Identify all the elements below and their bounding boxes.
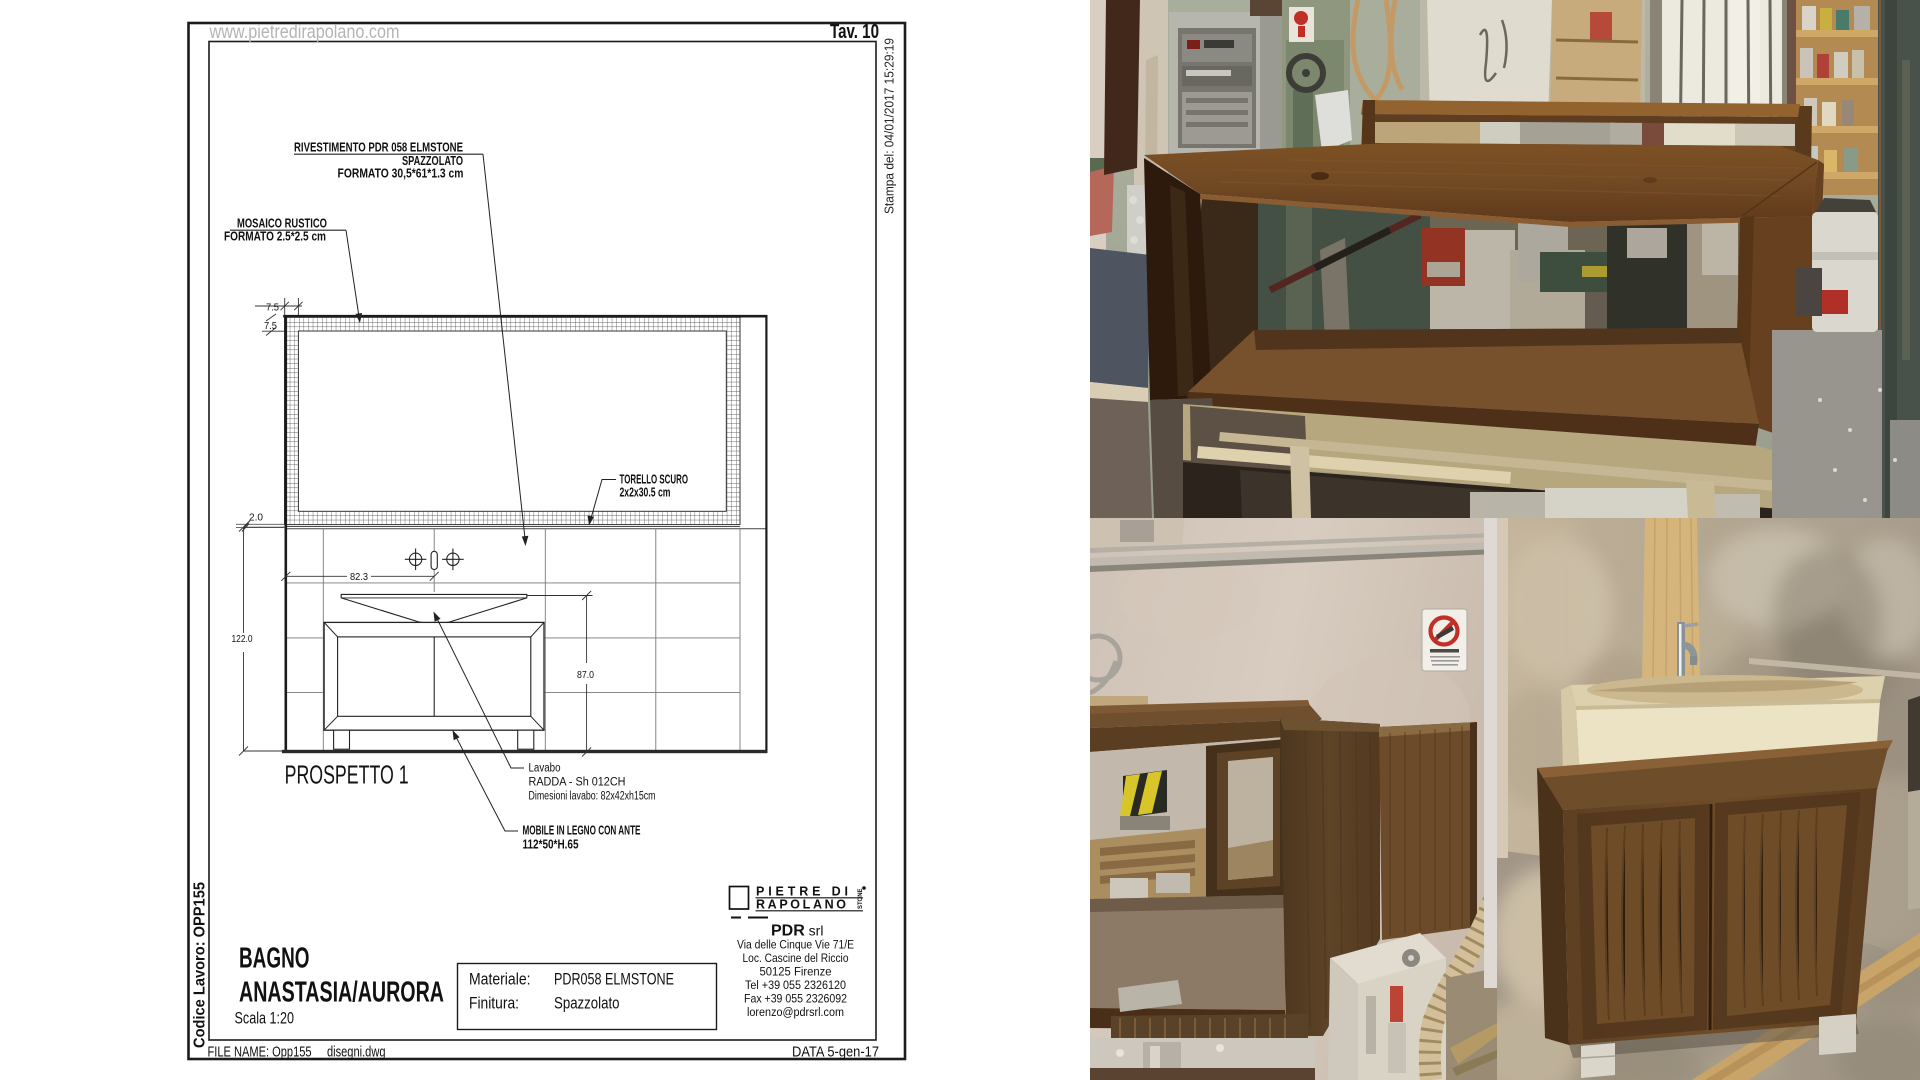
svg-text:Scala 1:20: Scala 1:20 [235, 1009, 295, 1028]
svg-text:TORELLO SCURO: TORELLO SCURO [620, 473, 689, 487]
svg-text:PDR058 ELMSTONE: PDR058 ELMSTONE [554, 971, 674, 989]
svg-text:112*50*H.65: 112*50*H.65 [523, 838, 579, 852]
svg-text:RADDA - Sh 012CH: RADDA - Sh 012CH [529, 777, 626, 789]
svg-text:Loc. Cascine del Riccio: Loc. Cascine del Riccio [743, 951, 849, 965]
svg-text:Dimesioni lavabo: 82x42xh15cm: Dimesioni lavabo: 82x42xh15cm [529, 791, 656, 803]
svg-text:87.0: 87.0 [577, 669, 594, 681]
svg-text:RAPOLANO: RAPOLANO [756, 898, 846, 912]
svg-text:ANASTASIA/AURORA: ANASTASIA/AURORA [239, 977, 444, 1009]
svg-text:MOBILE IN LEGNO CON ANTE: MOBILE IN LEGNO CON ANTE [523, 824, 641, 838]
svg-text:Finitura:: Finitura: [469, 995, 519, 1013]
svg-text:BAGNO: BAGNO [239, 943, 310, 975]
svg-text:FORMATO 30,5*61*1.3 cm: FORMATO 30,5*61*1.3 cm [338, 167, 464, 181]
svg-text:50125 Firenze: 50125 Firenze [760, 965, 832, 979]
svg-text:2x2x30.5 cm: 2x2x30.5 cm [620, 486, 671, 500]
svg-text:Stampa del: 04/01/2017 15:29:1: Stampa del: 04/01/2017 15:29:19 [882, 38, 897, 214]
svg-text:lorenzo@pdrsrl.com: lorenzo@pdrsrl.com [747, 1005, 844, 1019]
svg-text:STONE: STONE [858, 888, 864, 909]
svg-text:Materiale:: Materiale: [469, 971, 531, 989]
svg-text:Fax +39 055 2326092: Fax +39 055 2326092 [744, 992, 847, 1006]
svg-text:Tav. 10: Tav. 10 [830, 20, 879, 43]
svg-text:Codice Lavoro: OPP155: Codice Lavoro: OPP155 [192, 882, 209, 1048]
svg-text:122.0: 122.0 [232, 633, 253, 645]
svg-text:FORMATO 2.5*2.5 cm: FORMATO 2.5*2.5 cm [224, 230, 326, 244]
svg-text:www.pietredirapolano.com: www.pietredirapolano.com [209, 21, 400, 43]
svg-text:82.3: 82.3 [350, 571, 368, 583]
svg-text:Spazzolato: Spazzolato [554, 995, 620, 1013]
svg-text:MOSAICO RUSTICO: MOSAICO RUSTICO [237, 217, 327, 231]
svg-text:RIVESTIMENTO PDR 058 ELMSTONE: RIVESTIMENTO PDR 058 ELMSTONE [294, 141, 463, 155]
svg-text:7.5: 7.5 [264, 320, 277, 332]
svg-text:DATA 5-gen-17: DATA 5-gen-17 [792, 1044, 879, 1061]
svg-text:2.0: 2.0 [249, 512, 263, 524]
svg-text:PIETRE DI: PIETRE DI [756, 885, 848, 899]
svg-text:Lavabo: Lavabo [529, 763, 561, 775]
svg-text:Tel +39 055 2326120: Tel +39 055 2326120 [745, 978, 846, 992]
svg-text:7.5: 7.5 [266, 302, 279, 314]
svg-text:FILE NAME: Opp155__ disegni.dw: FILE NAME: Opp155__ disegni.dwg [208, 1044, 386, 1061]
svg-text:PROSPETTO 1: PROSPETTO 1 [285, 760, 409, 790]
svg-text:Via delle Cinque Vie 71/E: Via delle Cinque Vie 71/E [737, 938, 854, 952]
